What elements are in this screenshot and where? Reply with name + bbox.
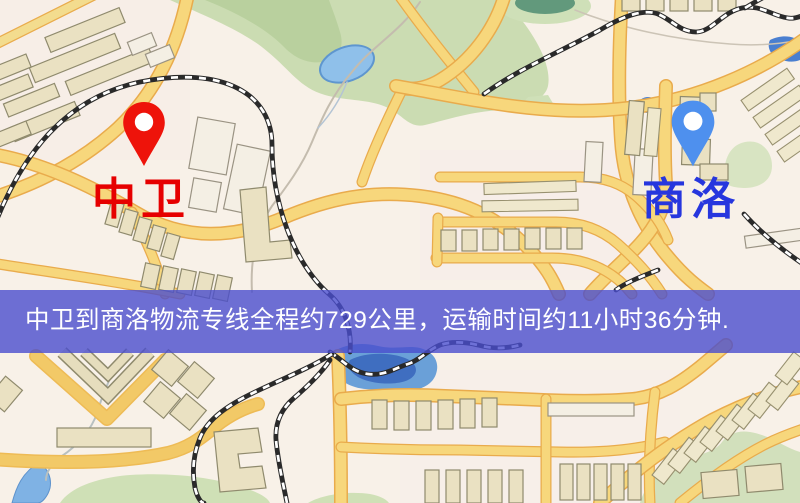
origin-label: 中卫 [92, 178, 190, 222]
map-canvas[interactable]: 中卫 商洛 中卫到商洛物流专线全程约729公里，运输时间约11小时36分钟. [0, 0, 800, 503]
origin-pin[interactable] [120, 100, 168, 168]
route-info-banner: 中卫到商洛物流专线全程约729公里，运输时间约11小时36分钟. [0, 290, 800, 353]
destination-label: 商洛 [642, 178, 740, 222]
map-pin-icon [120, 100, 168, 168]
destination-pin[interactable] [668, 99, 718, 168]
basemap [0, 0, 800, 503]
route-info-text: 中卫到商洛物流专线全程约729公里，运输时间约11小时36分钟. [0, 309, 729, 334]
map-pin-icon [668, 99, 718, 168]
